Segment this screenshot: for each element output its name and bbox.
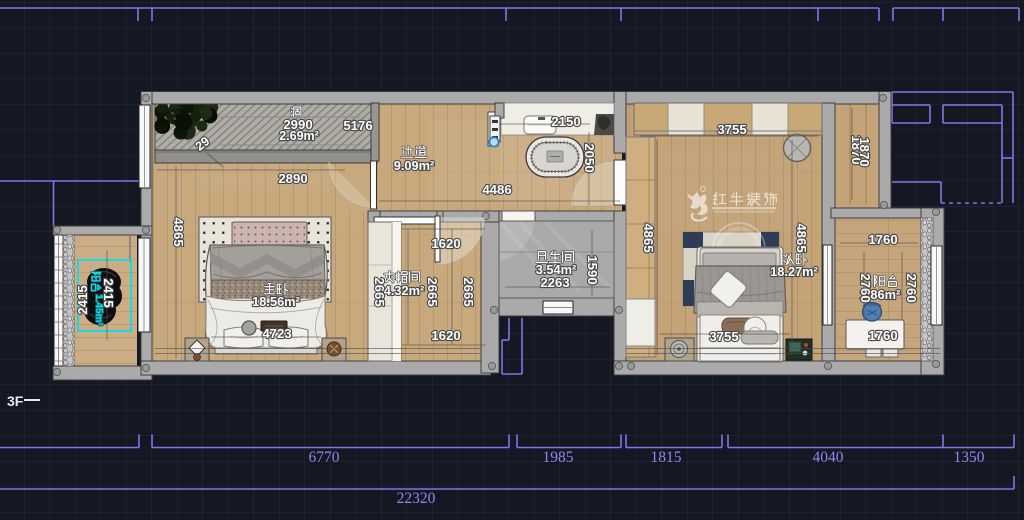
svg-text:6770: 6770 — [309, 449, 340, 466]
svg-text:2890: 2890 — [278, 171, 307, 186]
svg-text:18.27m²: 18.27m² — [770, 264, 818, 279]
svg-text:3755: 3755 — [709, 329, 738, 344]
svg-text:2665: 2665 — [372, 277, 387, 306]
svg-text:2760: 2760 — [904, 273, 919, 302]
svg-text:18.56m²: 18.56m² — [252, 294, 300, 309]
svg-text:2050: 2050 — [582, 143, 597, 172]
svg-text:2760: 2760 — [858, 273, 873, 302]
svg-text:2263: 2263 — [540, 275, 569, 290]
svg-text:2.69m²: 2.69m² — [279, 129, 319, 143]
svg-text:1620: 1620 — [431, 328, 460, 343]
svg-text:1.45m²: 1.45m² — [93, 294, 104, 326]
svg-text:1620: 1620 — [431, 236, 460, 251]
svg-text:1760: 1760 — [868, 328, 897, 343]
svg-text:1985: 1985 — [543, 449, 574, 466]
svg-text:4.32m²: 4.32m² — [384, 283, 425, 298]
svg-text:1815: 1815 — [651, 449, 682, 466]
svg-text:5176: 5176 — [343, 118, 372, 133]
svg-text:4486: 4486 — [482, 182, 511, 197]
svg-text:2665: 2665 — [425, 277, 440, 306]
svg-text:2415: 2415 — [75, 285, 90, 314]
svg-text:2665: 2665 — [461, 277, 476, 306]
svg-text:4865: 4865 — [794, 223, 809, 252]
svg-text:4723: 4723 — [262, 326, 291, 341]
svg-text:4865: 4865 — [171, 217, 186, 246]
svg-text:1350: 1350 — [954, 449, 985, 466]
svg-text:1760: 1760 — [868, 232, 897, 247]
svg-text:22320: 22320 — [397, 490, 436, 507]
svg-text:9.09m²: 9.09m² — [394, 158, 435, 173]
svg-text:2150: 2150 — [551, 114, 580, 129]
svg-text:4865: 4865 — [641, 223, 656, 252]
svg-text:4040: 4040 — [813, 449, 844, 466]
svg-text:3F: 3F — [7, 393, 24, 409]
svg-text:1590: 1590 — [585, 255, 600, 284]
svg-text:3755: 3755 — [717, 122, 746, 137]
svg-text:1870: 1870 — [857, 137, 872, 166]
